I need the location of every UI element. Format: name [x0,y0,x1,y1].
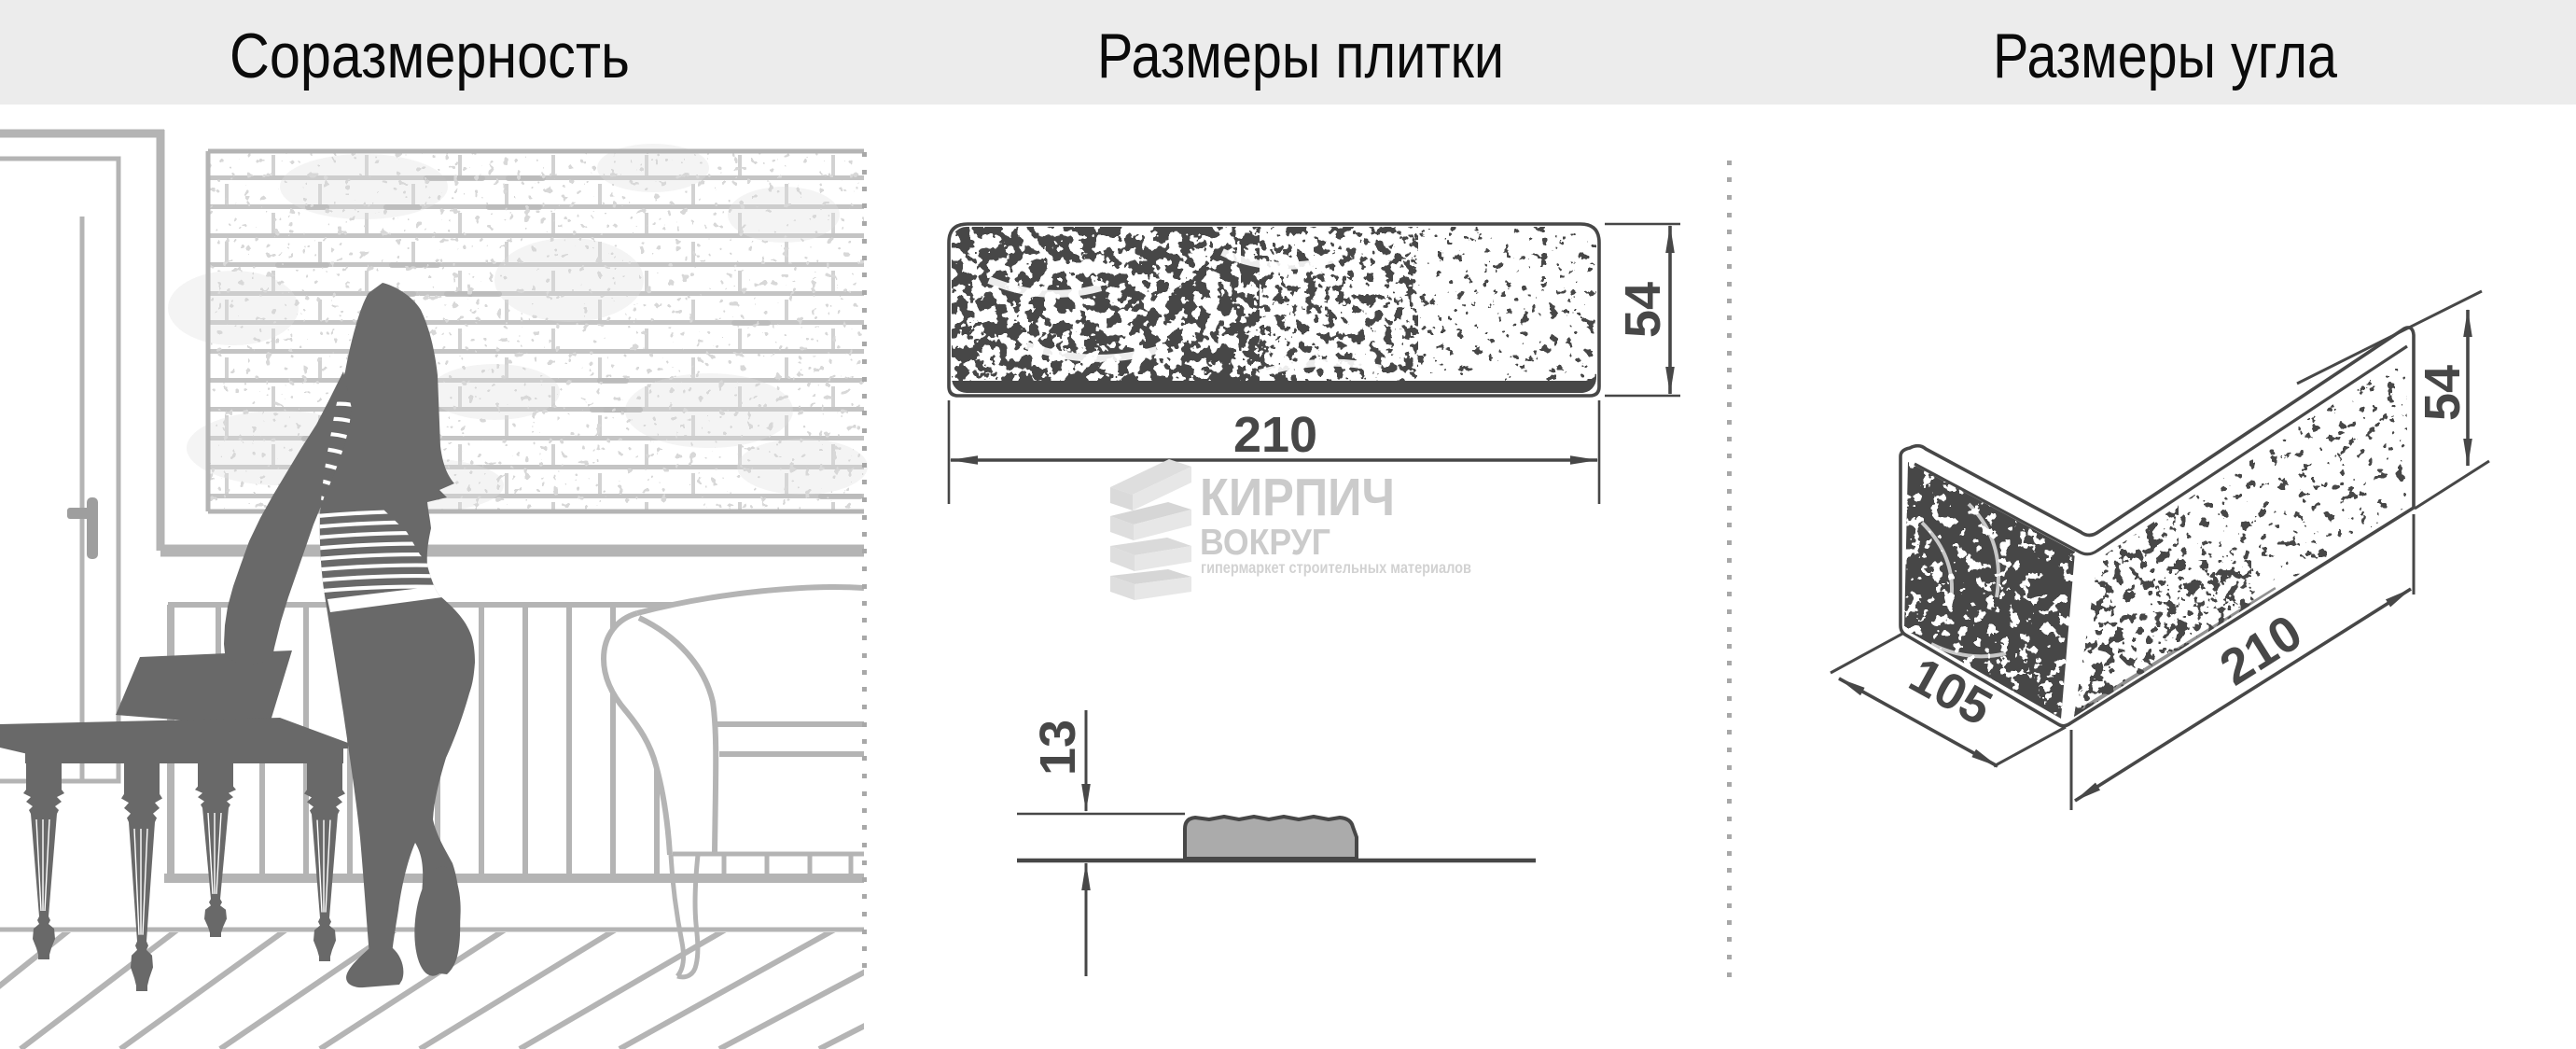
svg-text:210: 210 [1233,407,1317,463]
svg-text:Размеры угла: Размеры угла [1993,21,2337,91]
svg-text:ВОКРУГ: ВОКРУГ [1200,523,1330,563]
svg-text:КИРПИЧ: КИРПИЧ [1200,468,1395,527]
svg-text:гипермаркет строительных матер: гипермаркет строительных материалов [1201,558,1471,577]
svg-text:54: 54 [1615,282,1671,338]
svg-text:Соразмерность: Соразмерность [230,21,630,91]
svg-text:54: 54 [2415,365,2471,421]
svg-text:13: 13 [1030,720,1086,776]
svg-text:Размеры плитки: Размеры плитки [1097,21,1504,91]
